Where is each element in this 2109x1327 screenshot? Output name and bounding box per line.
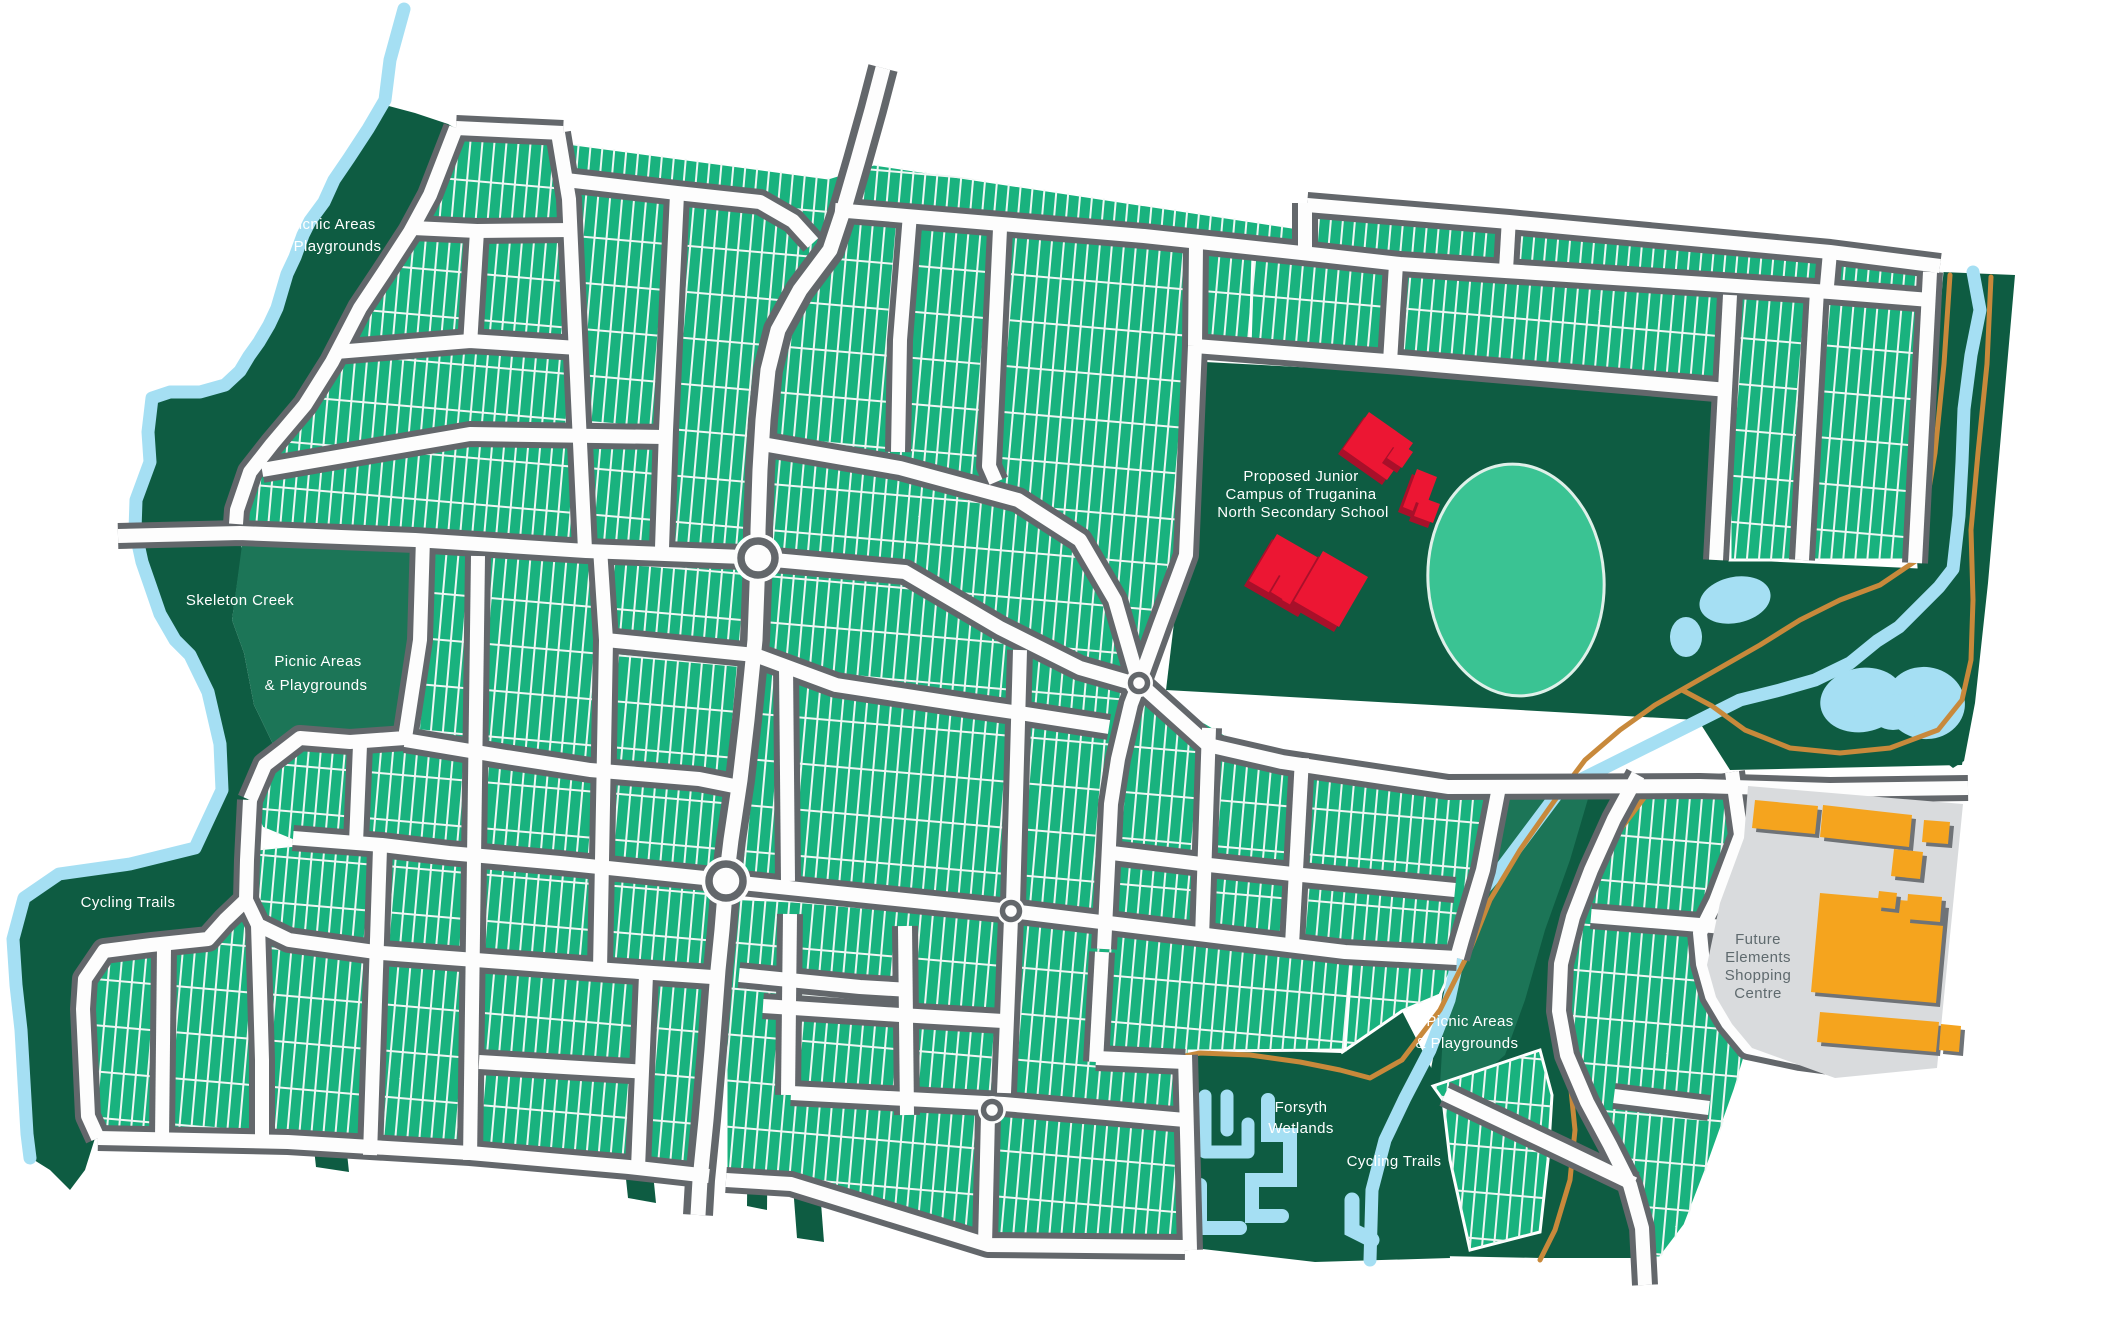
svg-text:Proposed Junior: Proposed Junior (1243, 468, 1358, 485)
svg-text:Skeleton Creek: Skeleton Creek (186, 592, 294, 609)
svg-text:Cycling Trails: Cycling Trails (1347, 1153, 1442, 1170)
svg-text:Centre: Centre (1734, 985, 1781, 1002)
svg-text:Wetlands: Wetlands (1268, 1120, 1333, 1137)
svg-text:Forsyth: Forsyth (1275, 1099, 1328, 1116)
svg-text:& Playgrounds: & Playgrounds (1416, 1035, 1519, 1052)
svg-text:& Playgrounds: & Playgrounds (279, 238, 382, 255)
svg-text:Cycling Trails: Cycling Trails (81, 894, 176, 911)
svg-text:Campus of Truganina: Campus of Truganina (1225, 486, 1376, 503)
svg-text:Future: Future (1735, 931, 1781, 948)
svg-text:& Playgrounds: & Playgrounds (265, 677, 368, 694)
svg-text:Picnic Areas: Picnic Areas (274, 653, 361, 670)
svg-text:Shopping: Shopping (1725, 967, 1792, 984)
svg-text:North Secondary School: North Secondary School (1217, 504, 1388, 521)
svg-text:Picnic Areas: Picnic Areas (1426, 1013, 1513, 1030)
svg-text:Picnic Areas: Picnic Areas (288, 216, 375, 233)
svg-text:Elements: Elements (1725, 949, 1791, 966)
